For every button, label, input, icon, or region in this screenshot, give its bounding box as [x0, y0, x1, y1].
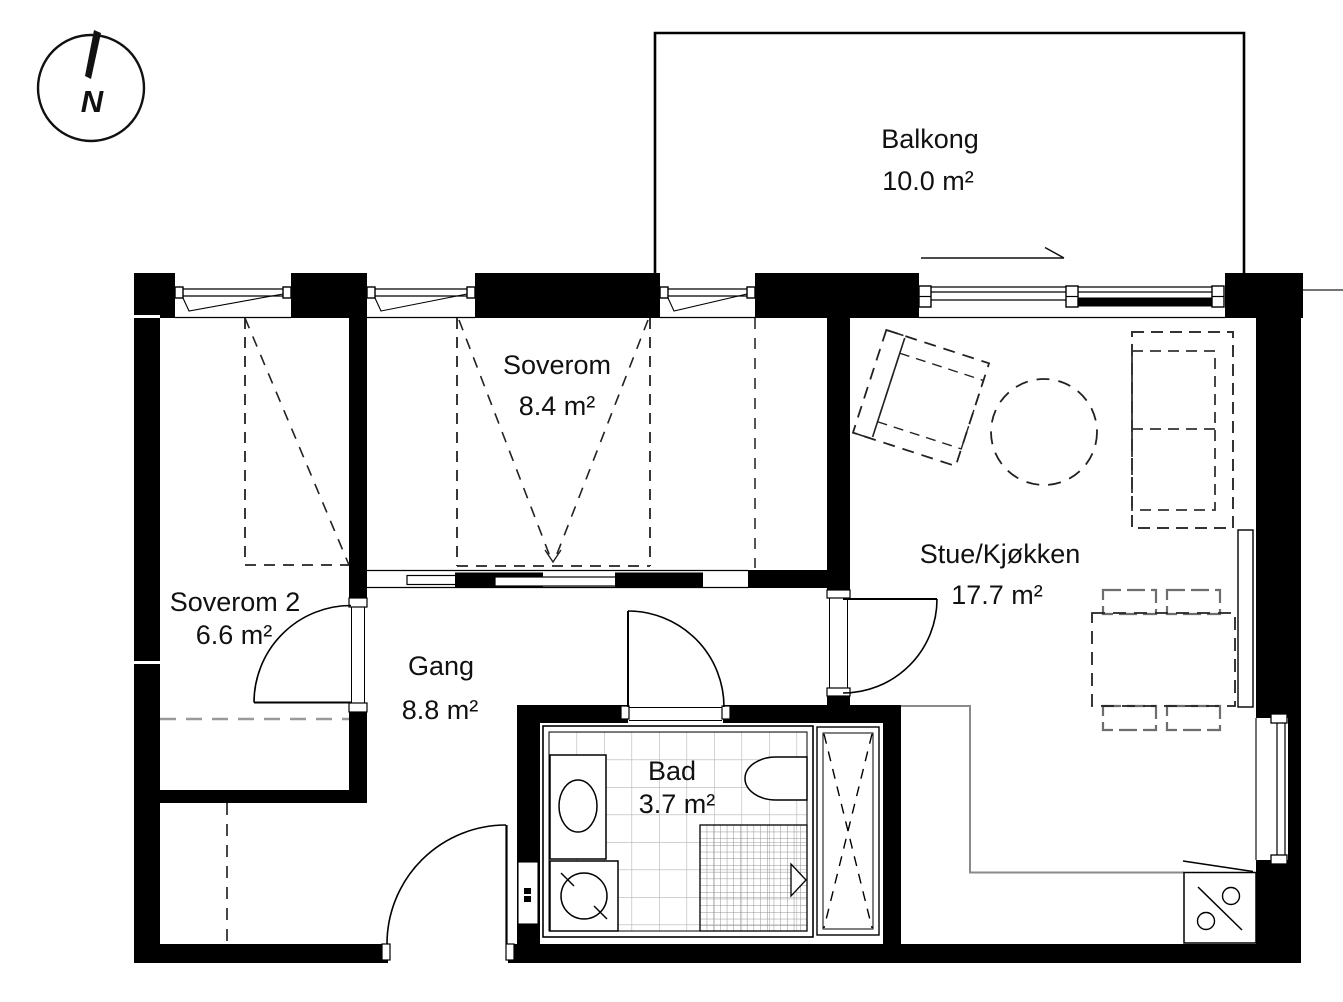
stue-furniture: [853, 330, 1235, 730]
soverom2-furniture: [160, 318, 349, 719]
door-stue: [827, 590, 937, 696]
wall-top-3: [755, 273, 919, 318]
bed2: [245, 318, 349, 565]
wall-soverom2-upper: [349, 318, 367, 598]
dining-set: [1092, 590, 1235, 730]
shower-zone: [700, 825, 807, 931]
bad-area: 3.7 m²: [639, 789, 716, 819]
door-bad: [621, 611, 730, 721]
window-soverom-2: [660, 287, 755, 318]
window-stue-right: [1256, 714, 1288, 864]
bad-name: Bad: [648, 756, 696, 786]
wall-bad-top-left: [517, 705, 628, 723]
wall-bottom-right: [508, 944, 1256, 963]
wall-top-2: [475, 273, 660, 318]
wall-cabinet: [518, 862, 538, 924]
soverom-sliding-door: [367, 571, 748, 588]
vanity-basin: [550, 755, 606, 859]
floor-plan: N Balkong 10.0 m²: [0, 0, 1343, 1002]
kitchen-sink-unit: [1183, 861, 1256, 943]
wall-stue-column-upper: [827, 318, 850, 592]
sliding-panel-track-2: [495, 577, 617, 586]
wall-left: [134, 273, 160, 963]
wall-sliding-stub: [748, 570, 827, 588]
window-soverom-1: [367, 287, 475, 318]
window-soverom2: [175, 287, 291, 318]
soverom-name: Soverom: [503, 350, 611, 380]
dining-chair: [1103, 706, 1156, 730]
washing-machine: [550, 861, 618, 931]
kitchen-counter-line: [901, 706, 1184, 873]
soverom-area: 8.4 m²: [519, 391, 596, 421]
wall-joint-notch-2: [134, 661, 160, 664]
dining-table: [1092, 613, 1235, 706]
kitchen-counter-right: [1238, 530, 1253, 707]
wall-bad-right: [883, 723, 901, 944]
balcony-sliding-door: [919, 286, 1225, 318]
compass: N: [38, 30, 144, 141]
sliding-panel-2: [615, 573, 703, 588]
soverom2-name: Soverom 2: [170, 587, 301, 617]
technical-shaft: [817, 727, 879, 935]
dining-chair: [1103, 590, 1156, 614]
floor-plan-drawing: N Balkong 10.0 m²: [0, 0, 1343, 1002]
round-table: [991, 379, 1097, 485]
compass-needle-icon: [85, 30, 101, 79]
dining-chair: [1167, 590, 1220, 614]
wall-soverom2-bottom: [134, 790, 367, 803]
wall-top-1: [291, 273, 367, 318]
sliding-panel: [1078, 298, 1212, 306]
wall-right: [1256, 318, 1301, 963]
balcony-name: Balkong: [881, 124, 979, 154]
balcony: Balkong 10.0 m²: [655, 33, 1244, 273]
compass-north-label: N: [81, 84, 104, 119]
wall-top-corner-right: [1225, 273, 1303, 318]
gang-area: 8.8 m²: [402, 695, 479, 725]
wall-joint-notch-1: [134, 315, 160, 318]
door-entrance: [382, 825, 514, 960]
armchair: [853, 330, 989, 466]
dining-chair: [1167, 706, 1220, 730]
sofa: [1132, 332, 1233, 528]
wall-bottom-left: [134, 944, 388, 963]
stue-name: Stue/Kjøkken: [920, 539, 1081, 569]
wall-bad-top-right: [723, 705, 901, 723]
wall-soverom2-lower: [349, 712, 367, 790]
toilet: [745, 757, 807, 800]
gang-name: Gang: [408, 651, 474, 681]
stue-area: 17.7 m²: [951, 580, 1043, 610]
sliding-direction-arrowhead: [1045, 248, 1064, 259]
soverom2-area: 6.6 m²: [196, 620, 273, 650]
balcony-area: 10.0 m²: [882, 166, 974, 196]
